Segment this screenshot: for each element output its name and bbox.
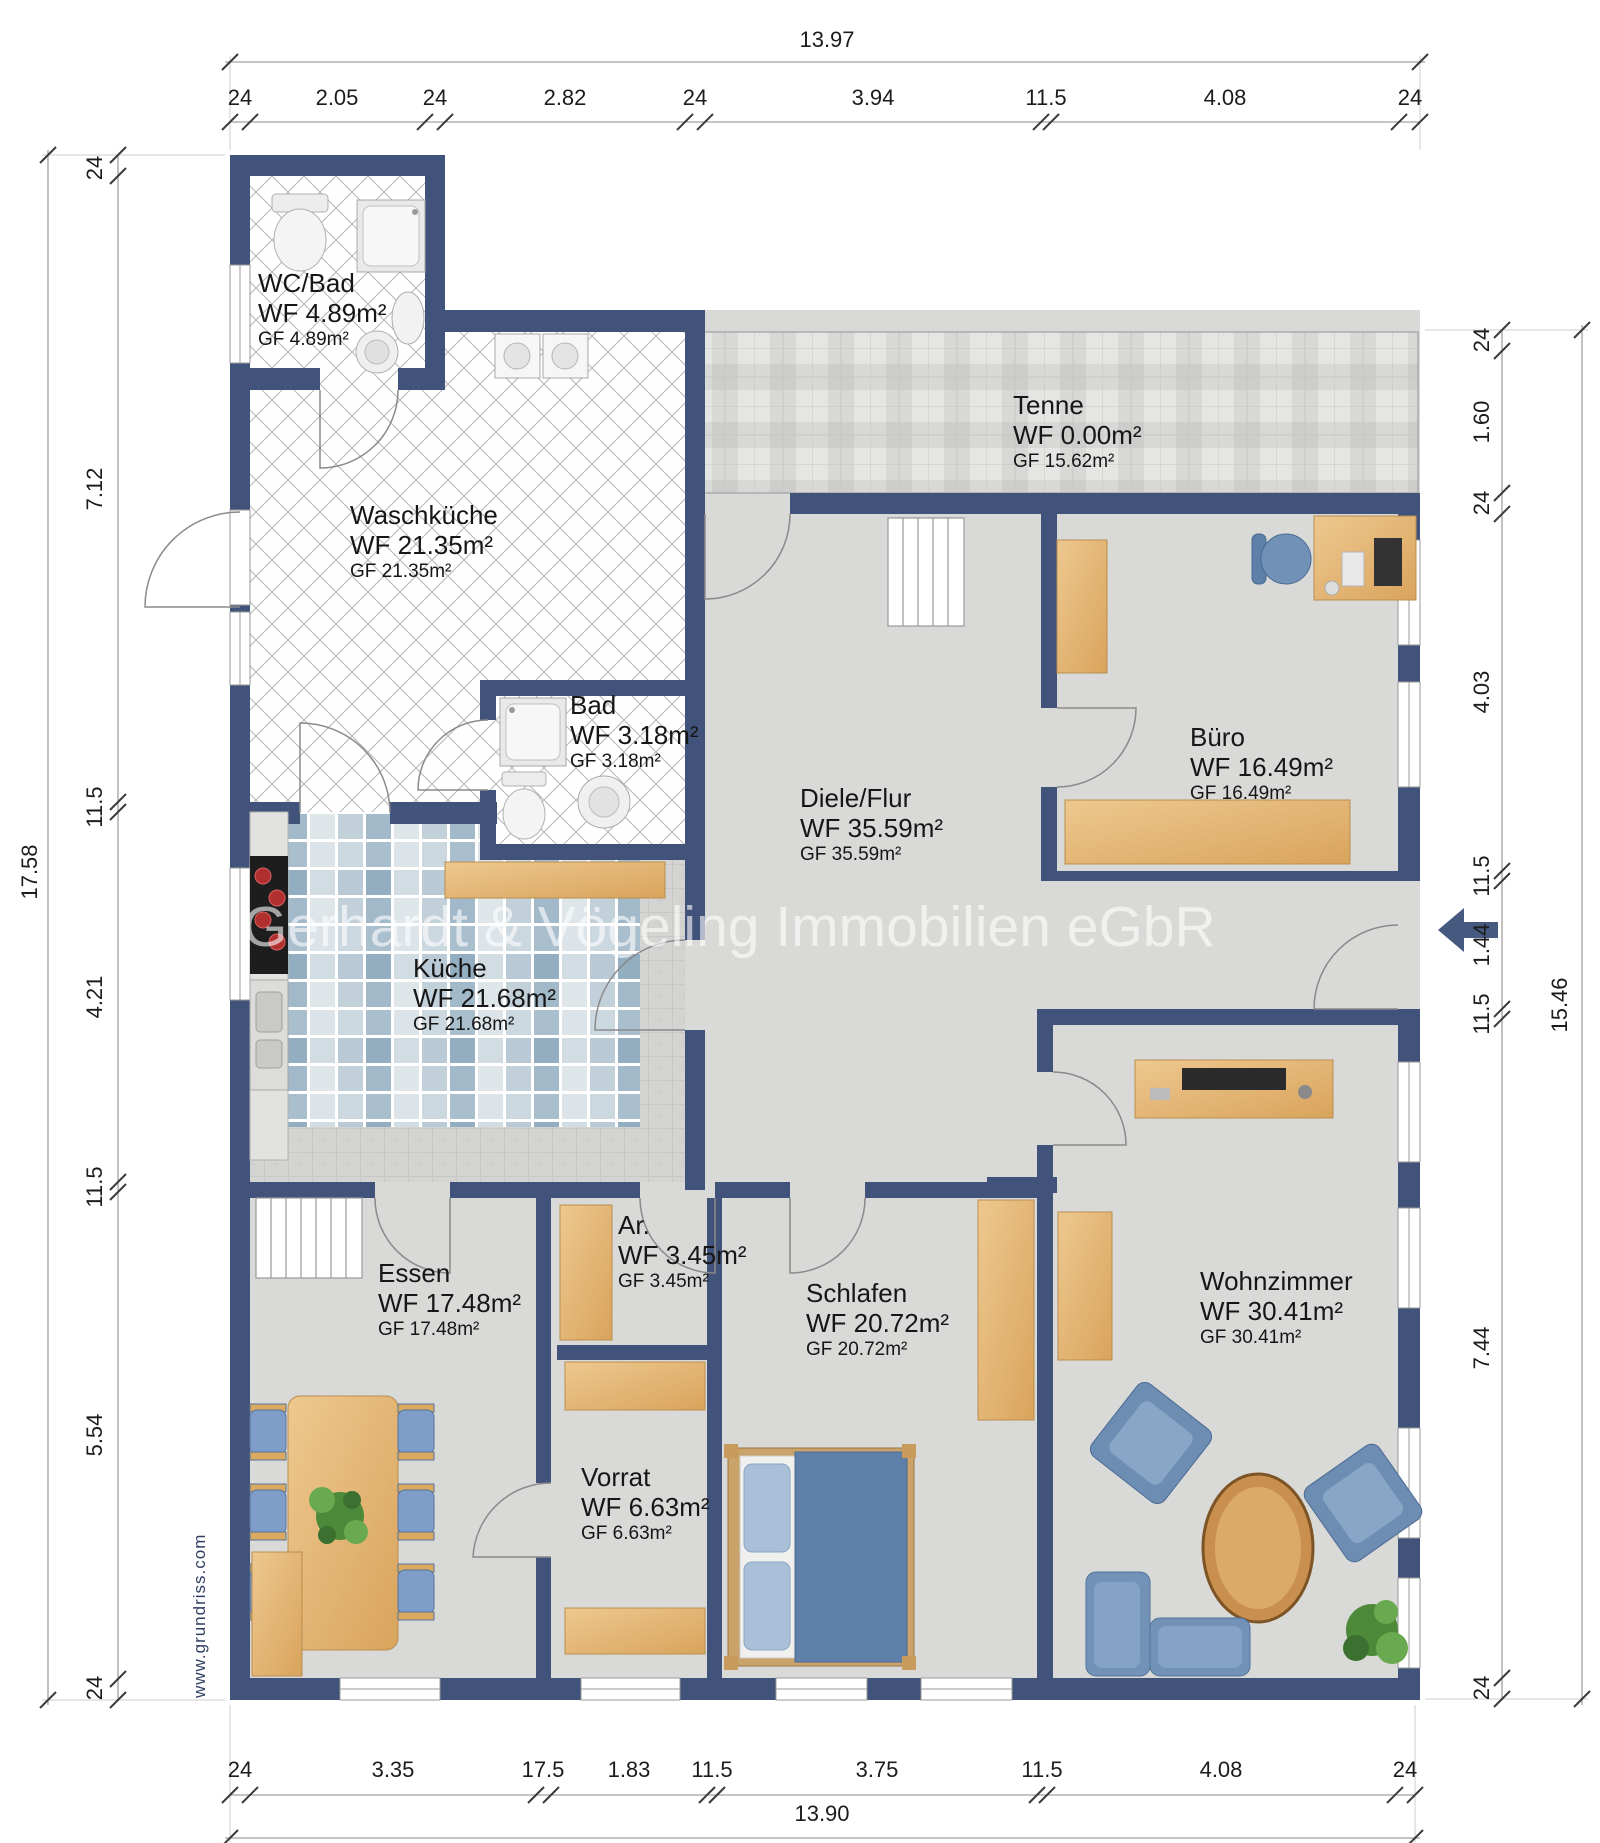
- dim-top-3: 2.82: [544, 85, 587, 111]
- dim-left-2: 11.5: [82, 786, 108, 827]
- tv-board: [1135, 1060, 1333, 1118]
- dim-bottom-4: 11.5: [691, 1757, 732, 1783]
- sink-bad: [578, 776, 630, 828]
- dim-bottom-2: 17.5: [522, 1757, 565, 1783]
- bed: [724, 1444, 916, 1670]
- dim-top-2: 24: [423, 85, 447, 111]
- room-gf: GF 4.89m²: [258, 328, 387, 351]
- kitchen-shelf: [445, 862, 665, 898]
- kitchen-counter: [250, 812, 288, 1160]
- dim-top-overall: 13.97: [799, 27, 854, 53]
- dim-top-6: 11.5: [1025, 85, 1066, 111]
- dim-right-7: 7.44: [1469, 1327, 1495, 1370]
- dim-bottom-5: 3.75: [856, 1757, 899, 1783]
- dim-top-0: 24: [228, 85, 252, 111]
- ar-cabinet: [560, 1205, 612, 1340]
- dim-top-1: 2.05: [316, 85, 359, 111]
- toilet-bad: [502, 772, 546, 839]
- dim-right-overall: 15.46: [1547, 977, 1573, 1032]
- dim-top-7: 4.08: [1204, 85, 1247, 111]
- dim-bottom-overall: 13.90: [794, 1801, 849, 1827]
- room-label-wcbad: WC/Bad WF 4.89m² GF 4.89m²: [258, 268, 387, 351]
- dim-top-8: 24: [1398, 85, 1422, 111]
- staircase-diele: [888, 518, 964, 626]
- staircase-essen: [256, 1198, 362, 1278]
- dim-left-overall: 17.58: [17, 844, 43, 899]
- wohnzimmer-cabinet: [1058, 1212, 1112, 1360]
- vorrat-shelf-top: [565, 1362, 705, 1410]
- room-label-tenne: Tenne WF 0.00m² GF 15.62m²: [1013, 390, 1142, 473]
- dim-right-6: 11.5: [1469, 993, 1495, 1034]
- dim-right-3: 4.03: [1469, 671, 1495, 714]
- door-opening: [230, 510, 250, 605]
- dim-bottom-0: 24: [228, 1757, 252, 1783]
- dim-right-5: 1.44: [1469, 924, 1495, 967]
- dim-bottom-3: 1.83: [608, 1757, 651, 1783]
- dim-bottom-6: 11.5: [1021, 1757, 1062, 1783]
- coffee-table: [1203, 1474, 1313, 1622]
- floor-plan-page: Gerhardt & Vögeling Immobilien eGbR www.…: [0, 0, 1600, 1843]
- toilet-wcbad: [272, 194, 328, 271]
- dim-left-1: 7.12: [82, 468, 108, 511]
- buero-cabinet: [1057, 540, 1107, 673]
- office-chair: [1252, 534, 1311, 584]
- door-exterior-waschkueche: [145, 512, 240, 607]
- kitchen-sink: [250, 980, 288, 1090]
- room-name: WC/Bad: [258, 268, 387, 298]
- room-label-wohnzimmer: Wohnzimmer WF 30.41m² GF 30.41m²: [1200, 1266, 1353, 1349]
- dim-bottom-1: 3.35: [372, 1757, 415, 1783]
- room-label-essen: Essen WF 17.48m² GF 17.48m²: [378, 1258, 521, 1341]
- dim-right-1: 1.60: [1469, 401, 1495, 444]
- room-label-diele: Diele/Flur WF 35.59m² GF 35.59m²: [800, 783, 943, 866]
- desk: [1314, 516, 1416, 600]
- room-label-kueche: Küche WF 21.68m² GF 21.68m²: [413, 953, 556, 1036]
- essen-sideboard: [252, 1552, 302, 1676]
- dining-table: [288, 1396, 398, 1650]
- room-label-waschkueche: Waschküche WF 21.35m² GF 21.35m²: [350, 500, 498, 583]
- schlafen-wardrobe: [978, 1200, 1034, 1420]
- sink-wcbad: [392, 292, 424, 344]
- dim-left-5: 5.54: [82, 1414, 108, 1457]
- shower-bad: [500, 698, 566, 766]
- buero-sideboard: [1065, 800, 1350, 864]
- dim-bottom-7: 4.08: [1200, 1757, 1243, 1783]
- watermark: Gerhardt & Vögeling Immobilien eGbR: [243, 894, 1216, 960]
- dim-right-2: 24: [1469, 491, 1495, 515]
- room-label-bad: Bad WF 3.18m² GF 3.18m²: [570, 690, 699, 773]
- room-wf: WF 4.89m²: [258, 298, 387, 328]
- dim-top-4: 24: [683, 85, 707, 111]
- dim-right-4: 11.5: [1469, 855, 1495, 896]
- dim-left-0: 24: [82, 156, 108, 180]
- dim-right-0: 24: [1469, 328, 1495, 352]
- dim-left-4: 11.5: [82, 1166, 108, 1207]
- dim-right-8: 24: [1469, 1676, 1495, 1700]
- dim-left-6: 24: [82, 1676, 108, 1700]
- vorrat-shelf-bottom: [565, 1608, 705, 1654]
- room-label-vorrat: Vorrat WF 6.63m² GF 6.63m²: [581, 1462, 710, 1545]
- dim-left-3: 4.21: [82, 976, 108, 1019]
- website-label: www.grundriss.com: [190, 1286, 210, 1698]
- dim-bottom-8: 24: [1393, 1757, 1417, 1783]
- room-label-schlafen: Schlafen WF 20.72m² GF 20.72m²: [806, 1278, 949, 1361]
- shower-wcbad: [357, 200, 425, 272]
- room-label-ar: Ar. WF 3.45m² GF 3.45m²: [618, 1210, 747, 1293]
- room-label-buero: Büro WF 16.49m² GF 16.49m²: [1190, 722, 1333, 805]
- dim-top-5: 3.94: [852, 85, 895, 111]
